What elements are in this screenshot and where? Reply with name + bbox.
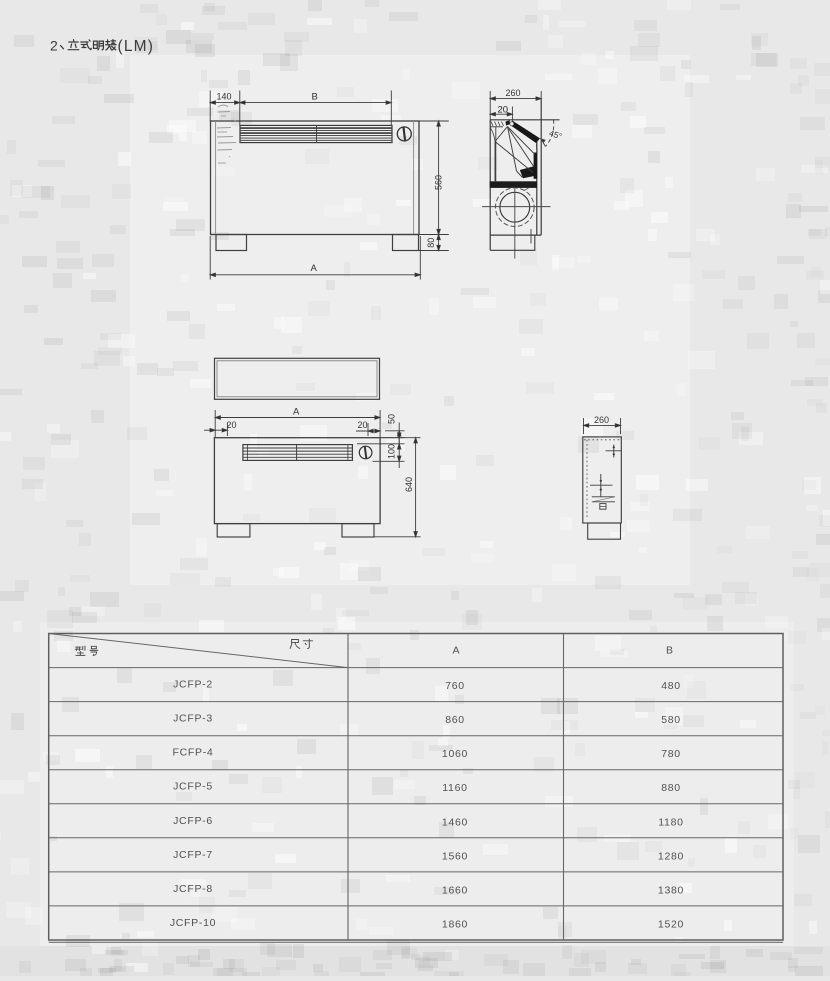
svg-text:2: 2	[50, 38, 58, 54]
svg-text:1660: 1660	[442, 884, 468, 896]
svg-text:A: A	[453, 645, 460, 657]
svg-text:580: 580	[661, 714, 681, 726]
svg-text:1180: 1180	[658, 816, 683, 828]
svg-text:50: 50	[387, 414, 397, 424]
svg-text:B: B	[312, 92, 318, 103]
svg-text:(LM): (LM)	[118, 38, 155, 55]
svg-text:100: 100	[387, 444, 397, 459]
svg-text:JCFP-7: JCFP-7	[173, 849, 213, 861]
svg-text:JCFP-8: JCFP-8	[173, 883, 213, 895]
svg-text:1560: 1560	[442, 850, 468, 862]
svg-text:140: 140	[217, 92, 232, 102]
svg-text:640: 640	[404, 477, 414, 492]
svg-text:20: 20	[498, 105, 509, 116]
svg-text:480: 480	[661, 680, 681, 692]
svg-text:A: A	[293, 407, 300, 418]
svg-text:880: 880	[661, 782, 681, 794]
svg-text:A: A	[311, 263, 318, 274]
svg-text:20: 20	[358, 420, 368, 430]
svg-text:JCFP-3: JCFP-3	[173, 713, 213, 725]
svg-text:1860: 1860	[442, 918, 468, 930]
svg-text:260: 260	[506, 88, 521, 98]
svg-text:FCFP-4: FCFP-4	[173, 747, 214, 759]
svg-text:JCFP-6: JCFP-6	[173, 815, 213, 827]
svg-text:20: 20	[227, 420, 237, 430]
svg-text:1060: 1060	[442, 748, 468, 760]
svg-text:1520: 1520	[658, 918, 684, 930]
svg-text:JCFP-5: JCFP-5	[173, 781, 213, 793]
svg-text:1380: 1380	[658, 884, 684, 896]
svg-text:560: 560	[434, 175, 444, 190]
svg-text:JCFP-10: JCFP-10	[170, 917, 216, 929]
svg-text:1160: 1160	[442, 782, 467, 794]
svg-text:780: 780	[661, 748, 681, 760]
svg-text:1280: 1280	[658, 850, 684, 862]
svg-text:B: B	[666, 645, 673, 657]
svg-text:1460: 1460	[442, 816, 468, 828]
svg-text:760: 760	[445, 680, 465, 692]
svg-text:860: 860	[445, 714, 465, 726]
svg-text:80: 80	[426, 238, 436, 248]
svg-text:260: 260	[594, 415, 609, 425]
svg-text:JCFP-2: JCFP-2	[173, 679, 213, 691]
